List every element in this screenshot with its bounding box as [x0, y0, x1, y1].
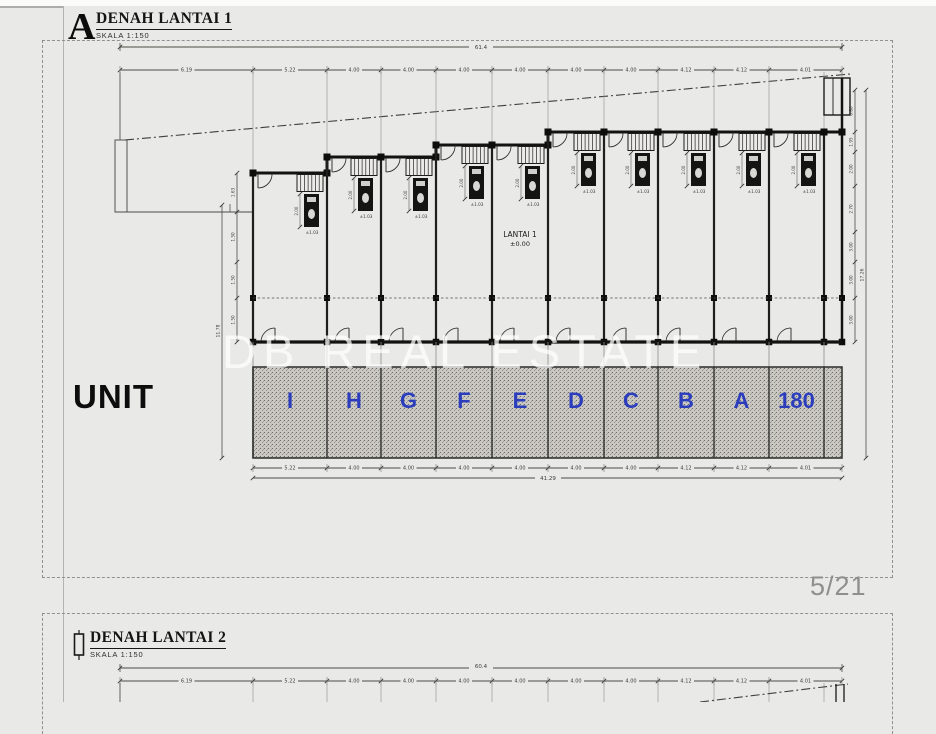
sheet2-title: DENAH LANTAI 2 — [90, 629, 226, 649]
sheet1-dashed-border — [42, 40, 893, 578]
page-top-edge — [0, 0, 936, 6]
watermark: DB REAL ESTATE — [222, 324, 708, 379]
section-marker-a: A — [68, 8, 95, 46]
sheet1-title-block: A DENAH LANTAI 1 SKALA 1:150 — [70, 10, 232, 40]
sheet2-title-block: DENAH LANTAI 2 SKALA 1:150 — [72, 629, 226, 659]
page-corner-line — [0, 6, 63, 8]
sheet1-scale: SKALA 1:150 — [96, 31, 232, 40]
sheet1-title: DENAH LANTAI 1 — [96, 10, 232, 30]
page-indicator: 5/21 — [810, 571, 867, 602]
unit-heading: UNIT — [73, 378, 154, 416]
column-marker-icon — [72, 630, 86, 660]
sheet2-scale: SKALA 1:150 — [90, 650, 226, 659]
